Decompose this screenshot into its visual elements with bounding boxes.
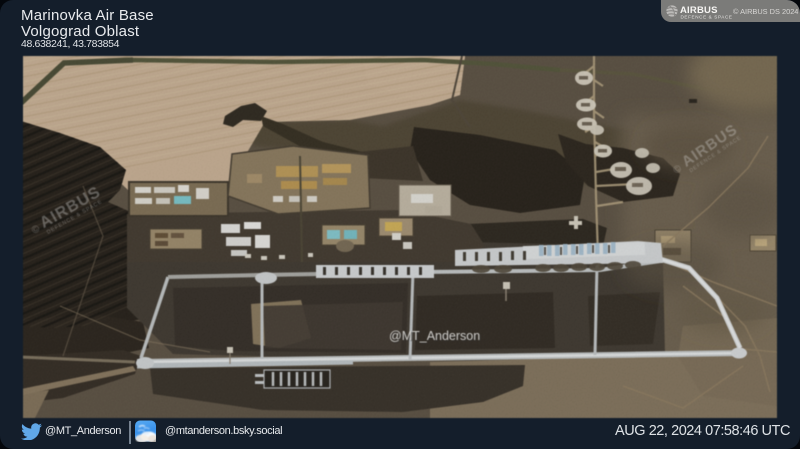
svg-text:DEFENCE & SPACE: DEFENCE & SPACE xyxy=(681,15,733,20)
svg-text:© AIRBUS DS 2024: © AIRBUS DS 2024 xyxy=(733,7,798,16)
